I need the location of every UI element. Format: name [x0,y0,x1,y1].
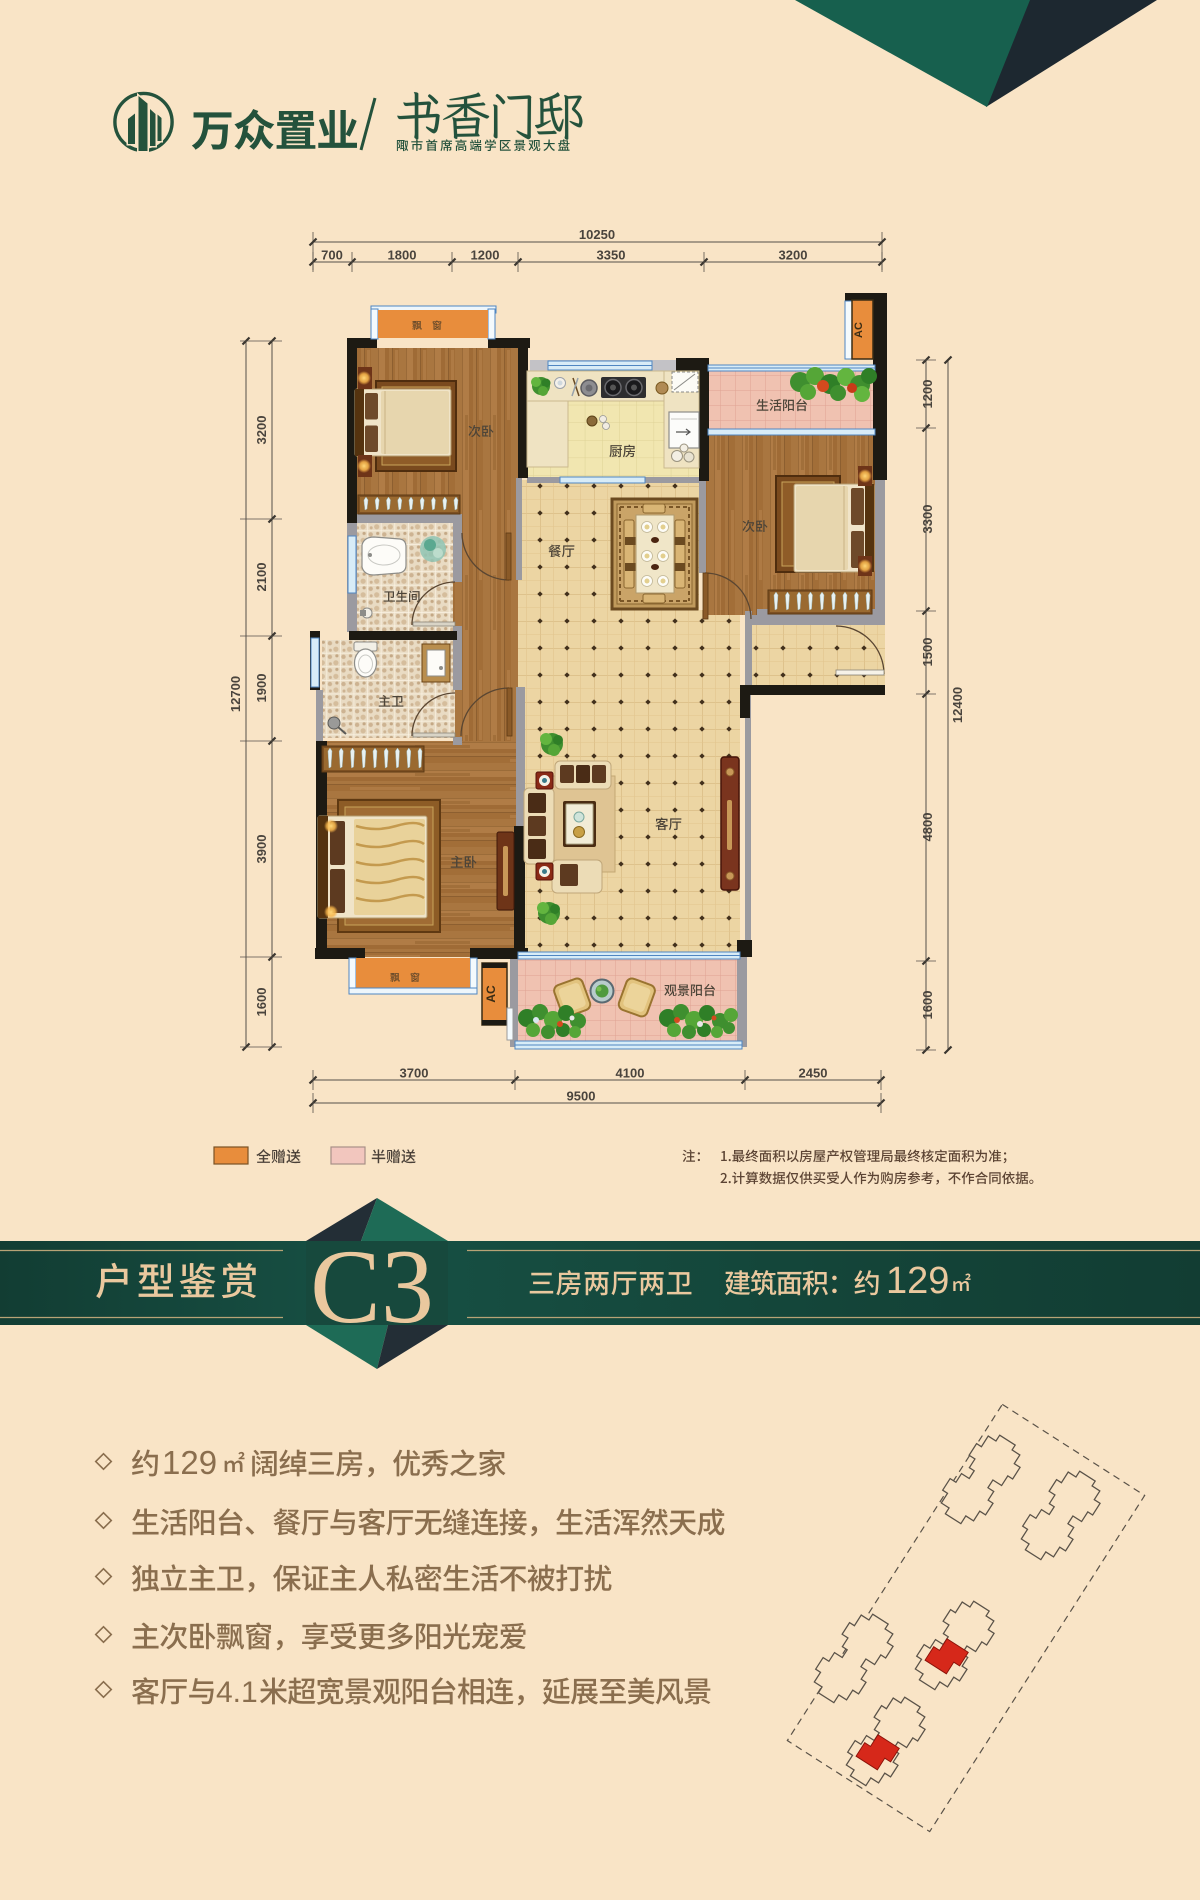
svg-text:3350: 3350 [597,248,626,263]
svg-text:4.1: 4.1 [216,1676,258,1709]
svg-text:3700: 3700 [400,1066,429,1081]
svg-text:1900: 1900 [254,674,269,703]
svg-text:3200: 3200 [254,416,269,445]
svg-text:2450: 2450 [799,1066,828,1081]
svg-text:1800: 1800 [388,248,417,263]
svg-text:AC: AC [853,322,865,338]
svg-text:1600: 1600 [254,988,269,1017]
svg-text:AC: AC [484,985,498,1003]
svg-text:3200: 3200 [779,248,808,263]
svg-text:10250: 10250 [579,227,615,242]
svg-text:C3: C3 [310,1228,434,1345]
svg-text:1200: 1200 [920,380,935,409]
svg-text:3300: 3300 [920,505,935,534]
svg-text:9500: 9500 [567,1089,596,1104]
svg-text:4100: 4100 [616,1066,645,1081]
svg-text:1200: 1200 [471,248,500,263]
svg-text:3900: 3900 [254,835,269,864]
svg-text:700: 700 [321,248,343,263]
svg-text:4800: 4800 [920,813,935,842]
svg-text:1600: 1600 [920,991,935,1020]
svg-text:12400: 12400 [950,687,965,723]
svg-text:1500: 1500 [920,638,935,667]
svg-text:12700: 12700 [228,676,243,712]
svg-text:129: 129 [886,1260,949,1302]
svg-text:129: 129 [162,1444,217,1481]
svg-text:2100: 2100 [254,563,269,592]
